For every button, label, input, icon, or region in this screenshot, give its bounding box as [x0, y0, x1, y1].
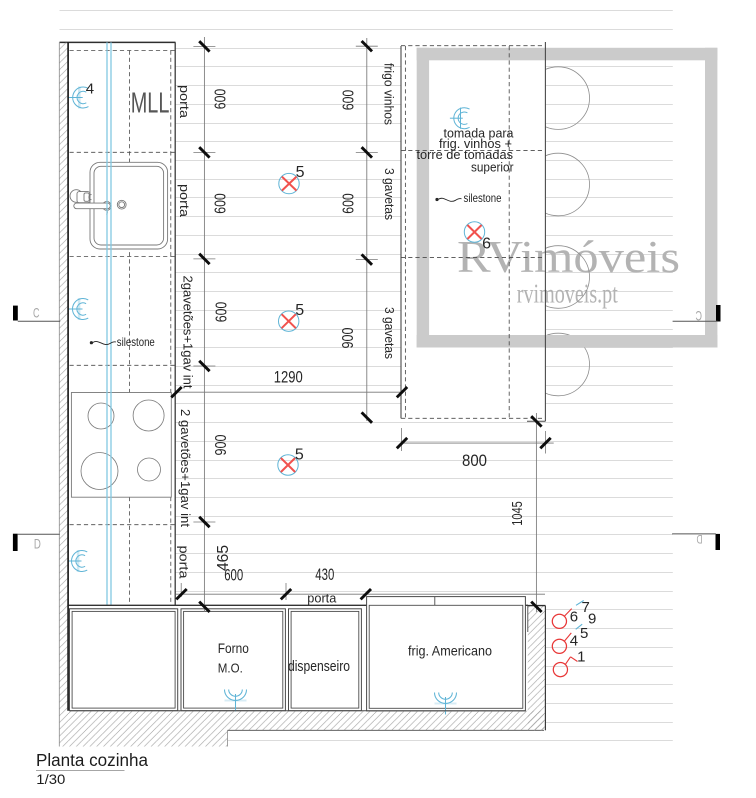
svg-text:1045: 1045	[509, 501, 526, 526]
svg-text:porta: porta	[177, 546, 192, 580]
svg-text:600: 600	[213, 88, 230, 109]
svg-text:800: 800	[462, 452, 487, 470]
svg-text:5: 5	[295, 447, 304, 464]
svg-text:600: 600	[341, 89, 358, 110]
svg-text:silestone: silestone	[117, 335, 155, 349]
svg-text:Forno: Forno	[218, 641, 249, 657]
svg-text:frig. Americano: frig. Americano	[408, 642, 492, 658]
svg-text:6: 6	[570, 608, 578, 625]
svg-text:C: C	[33, 304, 40, 320]
svg-text:900: 900	[340, 327, 357, 348]
svg-text:6: 6	[482, 236, 491, 253]
svg-text:600: 600	[213, 193, 230, 214]
svg-text:4: 4	[570, 632, 578, 649]
svg-text:600: 600	[213, 301, 230, 322]
svg-text:rvimoveis.pt: rvimoveis.pt	[517, 279, 618, 309]
svg-text:M.O.: M.O.	[218, 661, 243, 676]
svg-text:5: 5	[295, 302, 304, 319]
svg-text:C: C	[696, 307, 703, 323]
svg-text:600: 600	[224, 566, 243, 585]
svg-text:superior: superior	[471, 160, 514, 174]
svg-text:porta: porta	[307, 591, 337, 606]
svg-text:9: 9	[588, 611, 596, 628]
svg-text:3 gavetas: 3 gavetas	[382, 307, 397, 359]
svg-text:Planta cozinha: Planta cozinha	[36, 750, 148, 770]
svg-text:MLL: MLL	[131, 87, 170, 120]
svg-text:frigo vinhos: frigo vinhos	[382, 63, 397, 125]
svg-text:430: 430	[315, 565, 334, 584]
svg-text:porta: porta	[177, 85, 192, 119]
svg-text:silestone: silestone	[464, 191, 502, 205]
svg-text:5: 5	[580, 625, 588, 642]
svg-text:600: 600	[341, 193, 358, 214]
svg-text:porta: porta	[177, 184, 192, 218]
svg-text:1/30: 1/30	[36, 772, 65, 788]
svg-text:dispenseiro: dispenseiro	[288, 659, 350, 675]
svg-text:2 gavetões+1gav int: 2 gavetões+1gav int	[178, 409, 193, 527]
svg-text:1: 1	[577, 648, 585, 665]
svg-text:2gavetões+1gav int: 2gavetões+1gav int	[180, 276, 195, 389]
svg-text:4: 4	[86, 81, 94, 98]
svg-text:900: 900	[213, 434, 230, 455]
svg-text:D: D	[34, 535, 41, 551]
svg-text:D: D	[696, 532, 702, 546]
svg-text:3 gavetas: 3 gavetas	[382, 168, 397, 220]
svg-text:5: 5	[296, 164, 305, 181]
svg-text:1290: 1290	[274, 368, 303, 387]
